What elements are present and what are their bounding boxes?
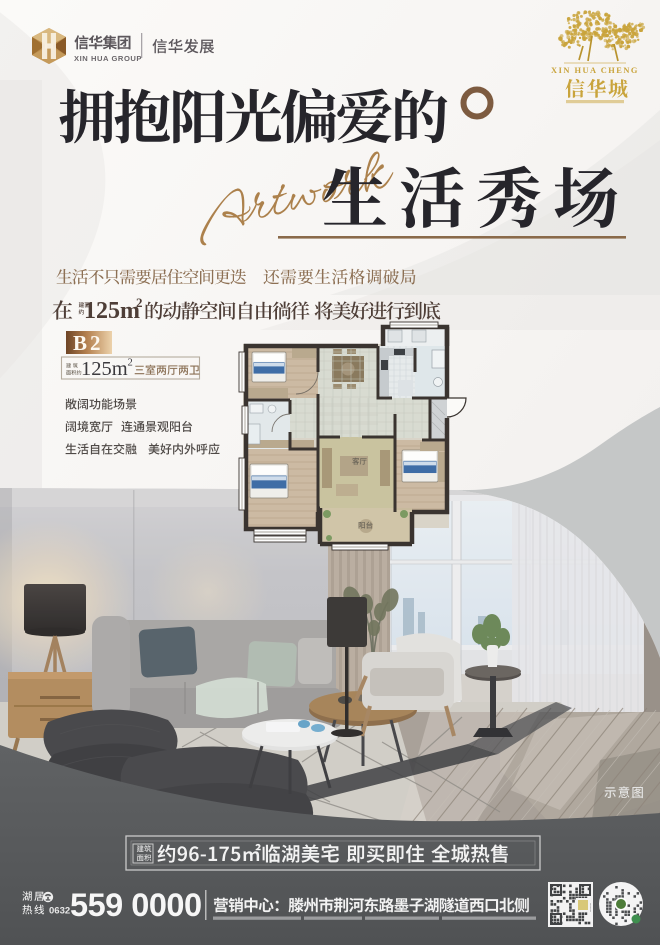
svg-text:559 0000: 559 0000 (70, 887, 202, 923)
svg-text:2: 2 (128, 358, 133, 369)
svg-text:125m: 125m (84, 298, 140, 324)
svg-text:0632: 0632 (49, 906, 70, 917)
svg-text:XIN HUA CHENG: XIN HUA CHENG (551, 66, 639, 75)
svg-text:XIN HUA GROUP: XIN HUA GROUP (74, 54, 142, 63)
svg-text:B2: B2 (73, 331, 104, 355)
svg-text:2: 2 (136, 295, 143, 310)
svg-text:125m: 125m (81, 358, 128, 380)
